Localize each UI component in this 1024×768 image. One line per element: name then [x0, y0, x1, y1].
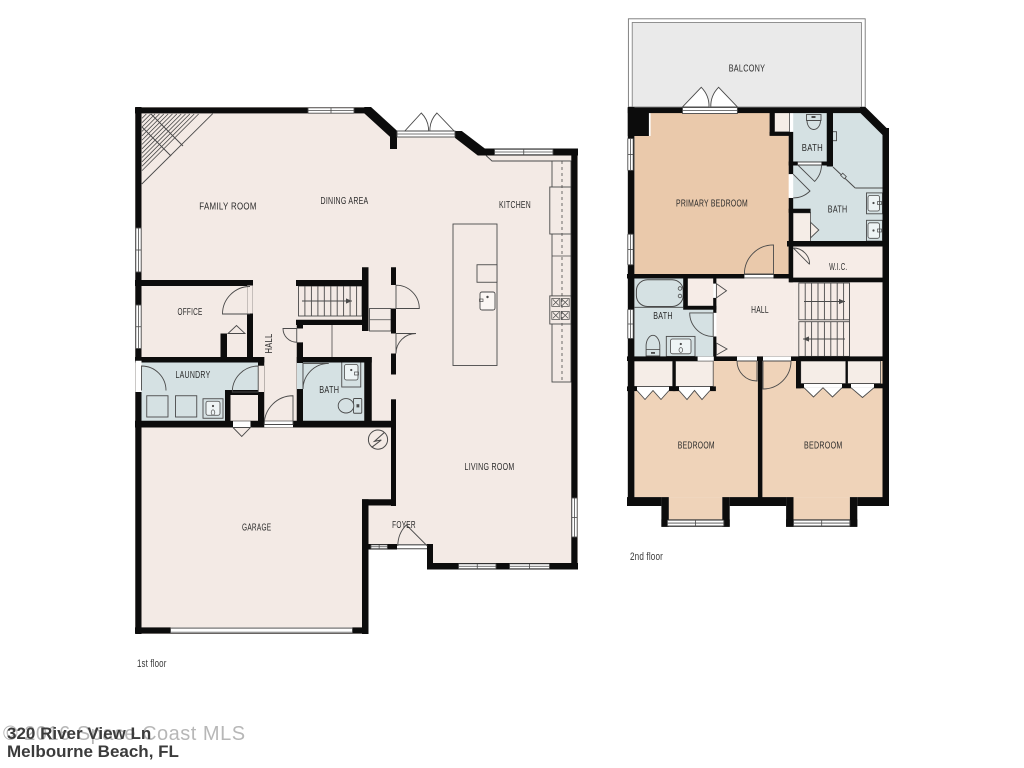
- svg-text:LAUNDRY: LAUNDRY: [176, 369, 211, 381]
- svg-text:BALCONY: BALCONY: [729, 63, 766, 75]
- svg-text:BATH: BATH: [319, 384, 339, 396]
- svg-text:OFFICE: OFFICE: [178, 306, 203, 318]
- svg-text:GARAGE: GARAGE: [242, 522, 271, 534]
- svg-text:HALL: HALL: [263, 334, 275, 354]
- svg-text:BATH: BATH: [828, 204, 848, 216]
- svg-text:BATH: BATH: [802, 142, 823, 154]
- svg-text:DINING AREA: DINING AREA: [321, 195, 369, 207]
- svg-text:BEDROOM: BEDROOM: [804, 440, 843, 452]
- svg-text:BEDROOM: BEDROOM: [678, 440, 715, 452]
- svg-text:LIVING ROOM: LIVING ROOM: [465, 461, 515, 473]
- svg-text:W.I.C.: W.I.C.: [829, 261, 847, 273]
- svg-text:BATH: BATH: [653, 310, 673, 322]
- svg-text:FAMILY ROOM: FAMILY ROOM: [199, 201, 257, 213]
- svg-text:FOYER: FOYER: [392, 519, 416, 531]
- svg-text:1st floor: 1st floor: [137, 658, 167, 670]
- svg-text:2nd floor: 2nd floor: [630, 551, 663, 563]
- svg-text:KITCHEN: KITCHEN: [499, 199, 531, 211]
- svg-text:HALL: HALL: [751, 304, 769, 316]
- svg-text:PRIMARY BEDROOM: PRIMARY BEDROOM: [676, 198, 748, 210]
